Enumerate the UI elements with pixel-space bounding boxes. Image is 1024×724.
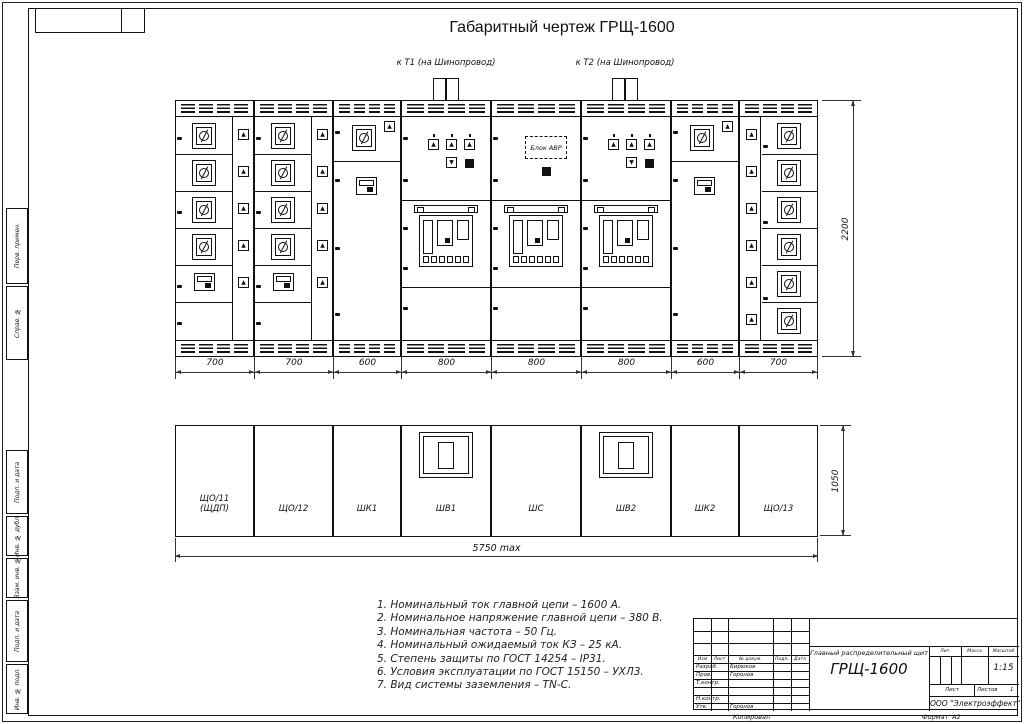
lock-icon (256, 322, 261, 325)
side-frame-label: Инв. № подл. (6, 664, 28, 714)
dimension-value: 600 (334, 358, 401, 368)
total-dimension: 5750 max (175, 556, 818, 557)
switch-handle-icon (192, 197, 216, 223)
note-line: 4. Номинальный ожидаемый ток КЗ – 25 кА. (377, 639, 663, 652)
indicator-button-up-icon: ▲ (238, 129, 249, 140)
role-label: Разраб. (696, 664, 718, 671)
indicator-button-up-icon: ▲ (722, 121, 733, 132)
dimension-value: 700 (740, 358, 817, 368)
cabinet-panel: ▲▲▲▲▲ (254, 100, 333, 357)
plan-cell-label: ШВ2 (582, 505, 670, 515)
circuit-breaker-icon (414, 205, 480, 281)
vent-grille (334, 101, 400, 117)
depth-dimension: 1050 (843, 425, 844, 536)
indicator-button-up-icon: ▲ (746, 240, 757, 251)
lock-icon (583, 179, 588, 182)
format-value: А2 (952, 713, 961, 721)
meter-device-icon (273, 273, 294, 291)
panel-front: ▲▲▲▲▲ (255, 117, 332, 340)
col-header: Подп. (773, 656, 791, 663)
breaker-footprint (419, 432, 473, 478)
indicator-button-up-icon: ▲ (608, 139, 619, 150)
width-dimension: 800 (581, 357, 671, 379)
switch-handle-icon (271, 123, 295, 149)
cabinet-panel: Блок АВР (491, 100, 581, 357)
arrow-right-icon (813, 554, 818, 558)
control-button-icon (645, 159, 654, 168)
indicator-button-up-icon: ▲ (317, 240, 328, 251)
vent-grille (672, 340, 738, 356)
col-header: Дата (791, 656, 809, 663)
lock-icon (177, 137, 182, 140)
indicator-button-up-icon: ▲ (317, 166, 328, 177)
title-block-line (791, 619, 792, 711)
vent-grille (492, 340, 580, 356)
role-label: Н.контр. (696, 696, 721, 703)
lock-icon (583, 307, 588, 310)
plan-cell-label: ЩО/11(ЩДП) (176, 495, 253, 514)
plan-cell: ЩО/11(ЩДП) (175, 425, 254, 537)
switch-handle-icon (192, 160, 216, 186)
vent-grille (740, 101, 817, 117)
lock-icon (493, 137, 498, 140)
switch-handle-icon (271, 197, 295, 223)
indicator-button-up-icon: ▲ (238, 277, 249, 288)
switch-handle-icon (271, 160, 295, 186)
scale-label: Масштаб (988, 648, 1019, 655)
side-frame-label: Перв. примен. (6, 208, 28, 284)
side-frame-label: Инв. № дубл. (6, 516, 28, 556)
height-dimension: 2200 (853, 100, 854, 357)
panel-front: ▲▲▲▲▲ (176, 117, 253, 340)
lock-icon (673, 131, 678, 134)
plan-cell-label: ШК2 (672, 505, 738, 515)
indicator-button-up-icon: ▲ (746, 277, 757, 288)
switch-handle-icon (777, 234, 801, 260)
plan-cell-label: ЩО/12 (255, 505, 332, 515)
plan-cell: ШС (491, 425, 581, 537)
bus-duct-stub (433, 78, 446, 101)
meter-device-icon (194, 273, 215, 291)
lit-label: Лит. (930, 648, 961, 655)
lock-icon (673, 247, 678, 250)
feeder-label-t2: к Т2 (на Шинопровод) (576, 58, 675, 68)
dimension-value: 800 (582, 358, 671, 368)
person-name: Горонов (730, 672, 754, 679)
lock-icon (403, 307, 408, 310)
title-block-line (694, 631, 809, 632)
indicator-button-up-icon: ▲ (746, 166, 757, 177)
extension-line (822, 356, 861, 357)
format-label: Формат (922, 713, 948, 721)
width-dimension: 700 (739, 357, 818, 379)
indicator-button-up-icon: ▲ (238, 240, 249, 251)
panel-front: ▲▲▲▼ (582, 117, 670, 340)
copied-label: Копировал (733, 713, 770, 721)
drawing-sheet: Перв. примен.Справ. №Подп. и датаИнв. № … (0, 0, 1024, 724)
switch-handle-icon (777, 308, 801, 334)
indicator-button-up-icon: ▲ (644, 139, 655, 150)
lock-icon (493, 307, 498, 310)
extension-line (820, 425, 851, 426)
breaker-footprint (599, 432, 653, 478)
mass-label: Масса (961, 648, 988, 655)
title-block-line (930, 656, 1019, 657)
plan-cell-label: ЩО/13 (740, 505, 817, 515)
plan-cell: ШВ2 (581, 425, 671, 537)
lock-icon (403, 227, 408, 230)
note-line: 7. Вид системы заземления – TN-C. (377, 679, 663, 692)
cabinet-panel: ▲▲▲▲▲▲ (739, 100, 818, 357)
role-label: Пров. (696, 672, 712, 679)
title-block-line (728, 619, 729, 711)
plan-cell-label: ШС (492, 505, 580, 515)
vent-grille (672, 101, 738, 117)
feeder-label-t1: к Т1 (на Шинопровод) (397, 58, 496, 68)
extension-line (820, 535, 851, 536)
lock-icon (493, 227, 498, 230)
side-frame-label: Справ. № (6, 286, 28, 360)
plan-cell: ЩО/12 (254, 425, 333, 537)
vent-grille (402, 101, 490, 117)
switch-handle-icon (352, 125, 376, 151)
bus-duct-stub (625, 78, 638, 101)
role-label: Т.контр. (696, 680, 720, 687)
bus-duct-stub (612, 78, 625, 101)
switch-handle-icon (777, 197, 801, 223)
width-dimension: 600 (333, 357, 401, 379)
switch-handle-icon (777, 160, 801, 186)
sheet-title: Габаритный чертеж ГРЩ-1600 (312, 19, 812, 37)
lock-icon (583, 227, 588, 230)
role-label: Утв. (696, 704, 708, 711)
title-block-line (773, 619, 774, 711)
note-line: 5. Степень защиты по ГОСТ 14254 – IP31. (377, 653, 663, 666)
lock-icon (256, 211, 261, 214)
lock-icon (177, 285, 182, 288)
switch-handle-icon (271, 234, 295, 260)
title-block-line (940, 656, 941, 684)
circuit-breaker-icon (504, 205, 570, 281)
indicator-button-up-icon: ▲ (746, 129, 757, 140)
vent-grille (740, 340, 817, 356)
plan-cell: ШК1 (333, 425, 401, 537)
lock-icon (763, 145, 768, 148)
lock-icon (335, 313, 340, 316)
vent-grille (176, 340, 253, 356)
dimension-value: 700 (176, 358, 254, 368)
dimension-value: 2200 (841, 217, 851, 240)
cabinet-panel: ▲▲▲▼ (401, 100, 491, 357)
vent-grille (176, 101, 253, 117)
width-dimension: 700 (254, 357, 333, 379)
indicator-button-up-icon: ▲ (428, 139, 439, 150)
indicator-button-up-icon: ▲ (238, 166, 249, 177)
indicator-button-down-icon: ▼ (446, 157, 457, 168)
lock-icon (256, 285, 261, 288)
vent-grille (255, 101, 332, 117)
indicator-button-down-icon: ▼ (626, 157, 637, 168)
dimension-value: 700 (255, 358, 333, 368)
dimension-value: 1050 (831, 469, 841, 492)
panel-front: ▲ (672, 117, 738, 340)
plan-cell: ЩО/13 (739, 425, 818, 537)
person-name: Бирюков (730, 664, 755, 671)
scale-value: 1:15 (988, 665, 1019, 672)
person-name: Горонов (730, 704, 754, 711)
control-button-icon (465, 159, 474, 168)
lock-icon (493, 267, 498, 270)
indicator-button-up-icon: ▲ (317, 203, 328, 214)
vent-grille (334, 340, 400, 356)
arrow-left-icon (175, 554, 180, 558)
indicator-button-up-icon: ▲ (384, 121, 395, 132)
title-block-line (930, 696, 1019, 697)
dimension-value: 800 (492, 358, 581, 368)
width-dimension: 800 (401, 357, 491, 379)
lock-icon (335, 179, 340, 182)
cabinet-panel: ▲▲▲▼ (581, 100, 671, 357)
indicator-button-up-icon: ▲ (746, 314, 757, 325)
cabinet-panel: ▲ (333, 100, 401, 357)
arrow-up-icon (841, 425, 845, 431)
width-dimension: 700 (175, 357, 254, 379)
company-name: ООО "Электроэффект" (930, 700, 1019, 707)
meter-device-icon (356, 177, 377, 195)
vent-grille (582, 101, 670, 117)
switch-handle-icon (777, 123, 801, 149)
side-frame-label: Подп. и дата (6, 600, 28, 662)
meter-device-icon (694, 177, 715, 195)
note-line: 2. Номинальное напряжение главной цепи –… (377, 612, 663, 625)
lock-icon (177, 211, 182, 214)
title-block-line (951, 656, 952, 684)
side-frame-label: Подп. и дата (6, 450, 28, 514)
switch-handle-icon (192, 123, 216, 149)
width-dimension: 600 (671, 357, 739, 379)
lock-icon (256, 137, 261, 140)
lock-icon (583, 137, 588, 140)
col-header: Лист (711, 656, 728, 663)
arrow-down-icon (851, 351, 855, 357)
indicator-button-up-icon: ▲ (317, 277, 328, 288)
width-dimension-row: 700700600800800800600700 (175, 357, 818, 379)
vent-grille (255, 340, 332, 356)
doc-number: ГРЩ-1600 (810, 660, 928, 678)
indicator-button-up-icon: ▲ (464, 139, 475, 150)
col-header: № докум. (728, 656, 773, 663)
lock-icon (335, 131, 340, 134)
col-header: Изм (694, 656, 711, 663)
avr-block-box: Блок АВР (525, 136, 567, 159)
extension-line (822, 100, 861, 101)
lock-icon (403, 267, 408, 270)
panel-front: ▲▲▲▲▲▲ (740, 117, 817, 340)
lock-icon (583, 267, 588, 270)
title-block-line (694, 687, 809, 688)
title-block: Изм Лист № докум. Подп. Дата Разраб. Бир… (693, 618, 1018, 710)
indicator-button-up-icon: ▲ (746, 203, 757, 214)
vent-grille (402, 340, 490, 356)
arrow-up-icon (851, 100, 855, 106)
side-frame-label: Взам. инв. № (6, 558, 28, 598)
switch-handle-icon (690, 125, 714, 151)
width-dimension: 800 (491, 357, 581, 379)
dimension-value: 800 (402, 358, 491, 368)
note-line: 1. Номинальный ток главной цепи – 1600 А… (377, 599, 663, 612)
panel-front: ▲ (334, 117, 400, 340)
title-block-line (974, 684, 975, 696)
cabinet-panel: ▲ (671, 100, 739, 357)
corner-designation-box (35, 8, 145, 33)
plan-cell: ШК2 (671, 425, 739, 537)
lock-icon (177, 322, 182, 325)
lock-icon (335, 247, 340, 250)
doc-title: Главный распределительный щит (810, 650, 928, 657)
lock-icon (403, 179, 408, 182)
vent-grille (582, 340, 670, 356)
switch-handle-icon (192, 234, 216, 260)
indicator-button-up-icon: ▲ (238, 203, 249, 214)
front-view: ▲▲▲▲▲▲▲▲▲▲▲▲▲▲▼Блок АВР▲▲▲▼▲▲▲▲▲▲▲ (175, 100, 818, 357)
plan-cell: ШВ1 (401, 425, 491, 537)
indicator-button-up-icon: ▲ (626, 139, 637, 150)
lock-icon (403, 137, 408, 140)
vent-grille (492, 101, 580, 117)
plan-cell-label: ШВ1 (402, 505, 490, 515)
panel-front: ▲▲▲▼ (402, 117, 490, 340)
lock-icon (673, 313, 678, 316)
sheets-label: Листов (977, 687, 998, 694)
switch-handle-icon (777, 271, 801, 297)
sheet-label: Лист (930, 687, 974, 694)
note-line: 6. Условия эксплуатации по ГОСТ 15150 – … (377, 666, 663, 679)
title-block-line (694, 643, 809, 644)
bus-duct-stub (446, 78, 459, 101)
control-button-icon (542, 167, 551, 176)
indicator-button-up-icon: ▲ (446, 139, 457, 150)
lock-icon (673, 179, 678, 182)
lock-icon (763, 297, 768, 300)
arrow-down-icon (841, 530, 845, 536)
circuit-breaker-icon (594, 205, 660, 281)
dimension-value: 5750 max (175, 543, 818, 554)
cabinet-panel: ▲▲▲▲▲ (175, 100, 254, 357)
note-line: 3. Номинальная частота – 50 Гц. (377, 626, 663, 639)
indicator-button-up-icon: ▲ (317, 129, 328, 140)
lock-icon (493, 179, 498, 182)
dimension-value: 600 (672, 358, 739, 368)
plan-cell-label: ШК1 (334, 505, 400, 515)
panel-front: Блок АВР (492, 117, 580, 340)
sheets-value: 1 (1010, 687, 1014, 694)
notes-list: 1. Номинальный ток главной цепи – 1600 А… (377, 599, 663, 693)
plan-view: ЩО/11(ЩДП)ЩО/12ШК1ШВ1ШСШВ2ШК2ЩО/13 (175, 425, 818, 537)
lock-icon (763, 221, 768, 224)
